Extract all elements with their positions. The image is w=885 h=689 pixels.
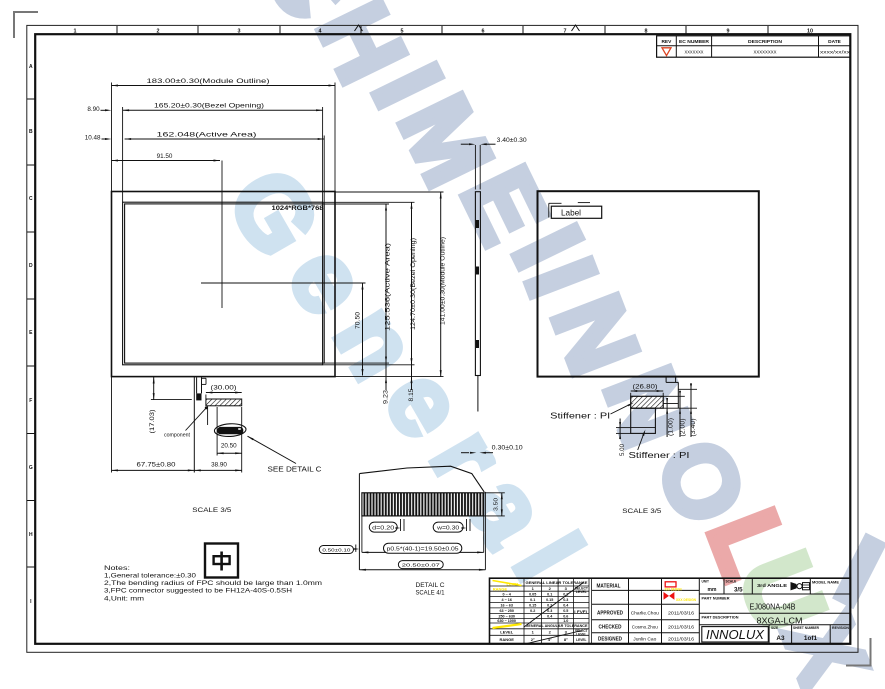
svg-text:H: H [29,532,33,538]
svg-text:2011/03/16: 2011/03/16 [668,611,694,617]
svg-text:Cosmo.Zhou: Cosmo.Zhou [632,625,658,631]
svg-text:9: 9 [727,29,730,35]
svg-text:MODEL NAME: MODEL NAME [812,580,840,584]
svg-text:mm: mm [708,587,717,593]
svg-text:MATERIAL: MATERIAL [597,583,621,589]
svg-text:LEVEL: LEVEL [574,610,588,615]
svg-text:8XGA-LCM: 8XGA-LCM [757,616,803,626]
svg-text:0.1: 0.1 [530,598,535,602]
svg-text:2: 2 [157,29,160,35]
svg-text:10.48: 10.48 [85,135,101,142]
svg-text:SCALE: SCALE [726,579,737,583]
svg-text:3rd ANGLE: 3rd ANGLE [757,583,787,588]
svg-text:component: component [164,432,190,438]
svg-text:9.23: 9.23 [383,389,390,404]
svg-text:Junlin Cao: Junlin Cao [633,637,656,643]
svg-text:xxxx/xx/xx: xxxx/xx/xx [820,49,851,54]
svg-text:8: 8 [645,29,648,35]
svg-text:EJ080NA-04B: EJ080NA-04B [750,601,796,611]
svg-text:p0.5*(40-1)=19.50±0.05: p0.5*(40-1)=19.50±0.05 [387,547,459,553]
svg-text:GENERAL ANGULAR TOLERANCE: GENERAL ANGULAR TOLERANCE [526,624,589,628]
svg-text:6: 6 [482,29,485,35]
svg-text:REV: REV [661,39,672,45]
svg-text:0.2: 0.2 [530,609,535,613]
svg-text:2011/03/16: 2011/03/16 [668,637,694,643]
svg-text:0.15: 0.15 [546,598,553,602]
svg-text:PART NUMBER: PART NUMBER [702,596,731,600]
svg-text:5.00: 5.00 [620,443,626,456]
svg-text:Charlie.Chou: Charlie.Chou [631,611,659,617]
svg-text:91.50: 91.50 [157,153,173,160]
svg-text:(17.03): (17.03) [149,410,156,434]
svg-text:0.5: 0.5 [563,609,568,613]
svg-text:D: D [29,263,33,269]
svg-text:A: A [29,64,33,70]
svg-text:(2.00): (2.00) [681,419,687,437]
svg-text:5: 5 [401,29,404,35]
svg-text:20.50±0.07: 20.50±0.07 [402,563,441,569]
svg-text:0.3: 0.3 [547,609,552,613]
svg-text:PART DESCRIPTION: PART DESCRIPTION [702,616,740,620]
svg-text:Stiffener : PI: Stiffener : PI [629,451,690,460]
svg-text:d=0.20: d=0.20 [372,526,394,532]
svg-text:3,FPC connector suggested to b: 3,FPC connector suggested to be FH12A-40… [104,588,292,595]
svg-text:LEVEL: LEVEL [507,582,520,587]
svg-text:4,Unit: mm: 4,Unit: mm [104,595,144,602]
svg-text:w=0.30: w=0.30 [437,526,459,532]
svg-text:125.536(Active Area): 125.536(Active Area) [385,243,392,331]
svg-text:LEVEL: LEVEL [576,633,586,637]
svg-text:DESIGNED: DESIGNED [598,637,622,643]
svg-text:630 ~ 1000: 630 ~ 1000 [497,619,516,623]
svg-text:G: G [29,465,33,471]
svg-text:0.6: 0.6 [563,614,568,618]
svg-text:XXX DESIGN: XXX DESIGN [665,588,683,592]
svg-text:0.50±0.10: 0.50±0.10 [322,548,350,554]
svg-text:F: F [29,398,32,404]
svg-text:LEVEL: LEVEL [500,629,513,634]
svg-text:XXXXXXX: XXXXXXX [685,49,704,54]
svg-text:LEVEL: LEVEL [576,638,586,642]
svg-text:250 ~ 630: 250 ~ 630 [498,614,515,618]
svg-text:0 ~ 4: 0 ~ 4 [503,592,512,596]
svg-text:20.50: 20.50 [221,443,237,450]
svg-text:XXXXXXXX: XXXXXXXX [754,49,777,54]
svg-text:C: C [29,196,33,202]
svg-text:162.048(Active Area): 162.048(Active Area) [157,131,257,138]
svg-text:165.20±0.30(Bezel Opening): 165.20±0.30(Bezel Opening) [154,103,264,110]
svg-text:GENERAL LINEAR TOLERANCE: GENERAL LINEAR TOLERANCE [526,580,588,585]
svg-text:183.00±0.30(Module Outline): 183.00±0.30(Module Outline) [147,78,270,85]
svg-text:3: 3 [238,29,241,35]
svg-text:B: B [29,129,33,135]
svg-text:7: 7 [564,29,567,35]
svg-text:8.15: 8.15 [408,388,415,402]
svg-text:SCALE 3/5: SCALE 3/5 [192,507,231,514]
svg-text:0.15: 0.15 [529,604,536,608]
svg-text:APPROVED: APPROVED [597,611,623,617]
svg-text:2,The bending radius of FPC sh: 2,The bending radius of FPC should be la… [104,580,322,587]
svg-text:Stiffener : PI: Stiffener : PI [550,411,610,420]
svg-text:0.05: 0.05 [529,592,536,596]
svg-text:INNOLUX: INNOLUX [706,628,765,642]
svg-text:8.90: 8.90 [87,106,100,113]
svg-text:SCALE 3/5: SCALE 3/5 [622,508,661,515]
svg-text:0.1: 0.1 [547,592,552,596]
svg-text:(1.00): (1.00) [668,418,674,436]
svg-text:10: 10 [807,29,813,35]
svg-text:1.0: 1.0 [563,619,568,623]
svg-text:REVISION: REVISION [832,626,850,630]
svg-text:141.00±0.30(Module Outline): 141.00±0.30(Module Outline) [439,237,446,325]
svg-text:124.70±0.30(Bezel Opening): 124.70±0.30(Bezel Opening) [410,238,417,330]
svg-text:63 ~ 250: 63 ~ 250 [499,609,513,613]
svg-text:SCALE 4/1: SCALE 4/1 [416,590,445,597]
svg-text:RANGE: RANGE [499,637,514,642]
svg-text:EC NUMBER: EC NUMBER [679,39,710,45]
svg-text:SIZE: SIZE [771,626,778,630]
svg-text:UNIT: UNIT [702,579,709,583]
svg-text:(26.80): (26.80) [633,383,658,390]
svg-text:(30.00): (30.00) [211,384,237,391]
svg-text:1: 1 [74,29,77,35]
svg-text:DATE: DATE [828,39,842,45]
svg-text:2011/03/16: 2011/03/16 [668,625,694,631]
svg-text:3.50: 3.50 [493,498,499,511]
svg-text:DETAIL C: DETAIL C [416,582,445,589]
svg-text:16 ~ 63: 16 ~ 63 [500,604,512,608]
svg-text:SHEET NUMBER: SHEET NUMBER [793,626,820,630]
svg-text:3.40±0.30: 3.40±0.30 [497,137,528,144]
svg-text:4: 4 [319,29,322,35]
svg-text:(3.40): (3.40) [691,419,697,437]
svg-text:3/5: 3/5 [734,586,743,593]
svg-text:LEVEL: LEVEL [576,590,587,594]
svg-text:1of1: 1of1 [804,635,818,642]
svg-text:67.75±0.80: 67.75±0.80 [137,462,177,469]
svg-text:SEE DETAIL C: SEE DETAIL C [268,464,322,473]
svg-text:8°: 8° [564,637,568,642]
svg-text:70.50: 70.50 [354,311,361,329]
svg-text:Notes:: Notes: [104,565,130,572]
svg-text:CHECKED: CHECKED [599,625,622,631]
svg-text:A3: A3 [776,635,785,642]
svg-text:Label: Label [561,209,581,218]
svg-text:0.3: 0.3 [563,598,568,602]
svg-text:1,General tolerance:±0.30: 1,General tolerance:±0.30 [104,573,197,580]
svg-text:4 ~ 16: 4 ~ 16 [502,598,512,602]
svg-text:RANGE: RANGE [493,587,508,592]
svg-text:1024*RGB*768: 1024*RGB*768 [272,205,325,212]
svg-text:38.90: 38.90 [211,462,227,469]
svg-text:0.30±0.10: 0.30±0.10 [492,445,524,452]
svg-text:0.2: 0.2 [547,604,552,608]
svg-text:XXX DESIGN: XXX DESIGN [676,598,697,602]
svg-text:DESCRIPTION: DESCRIPTION [748,39,783,45]
